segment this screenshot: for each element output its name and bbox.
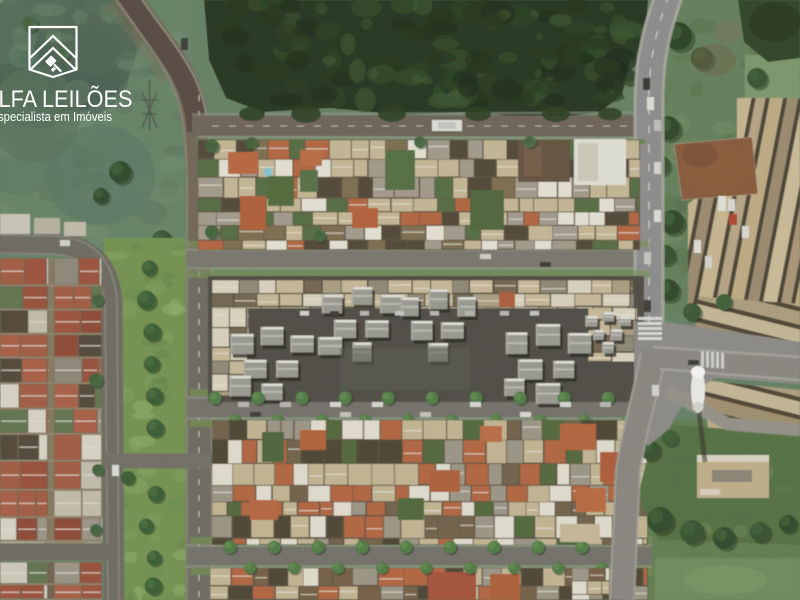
svg-text:LFA LEILÕES: LFA LEILÕES [0,85,133,113]
svg-text:specialista em Imóveis: specialista em Imóveis [0,110,112,124]
